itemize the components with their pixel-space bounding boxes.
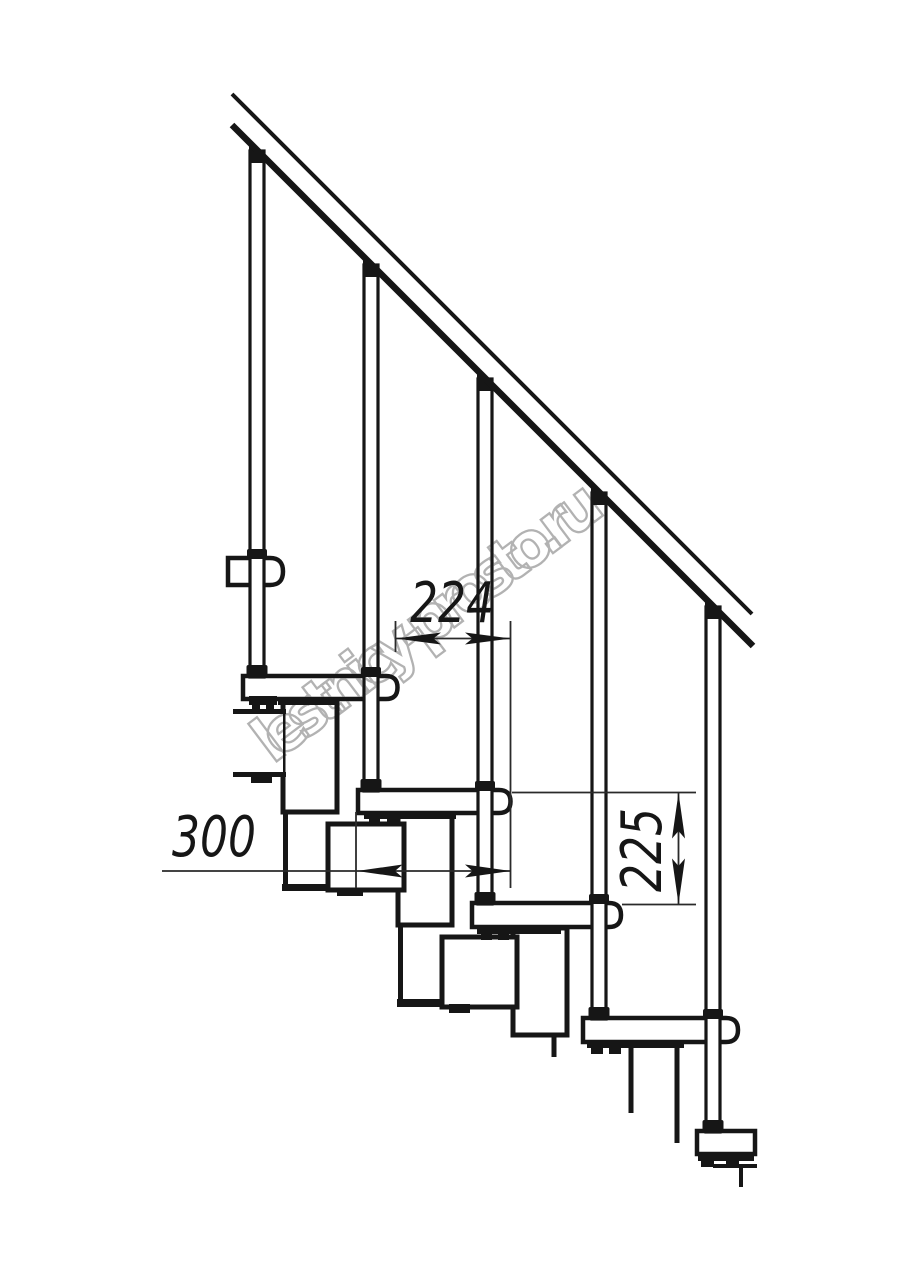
module-drop-strip-3 xyxy=(513,928,567,1035)
tread-4-bracket-foot xyxy=(481,934,492,940)
tread-6-bracket-foot xyxy=(701,1161,714,1167)
drawing-page: 224 300 225 lestnicy-prosto.ru xyxy=(0,0,914,1280)
tread-4-shadow xyxy=(477,925,561,934)
baluster-4-collar xyxy=(589,894,609,904)
module-box-1-hook xyxy=(251,776,272,783)
baluster-1 xyxy=(250,151,264,677)
tread-5-bracket-foot xyxy=(591,1048,603,1054)
tread-4-bracket-foot xyxy=(498,934,509,940)
watermark-text: lestnicy-prosto.ru xyxy=(238,469,613,776)
tread-6 xyxy=(697,1131,755,1154)
staircase-drawing: 224 300 225 lestnicy-prosto.ru xyxy=(0,0,914,1280)
tread-5-bracket-foot xyxy=(609,1048,621,1054)
tread-3-bracket-foot xyxy=(387,819,398,825)
baluster-4 xyxy=(592,493,606,1019)
baluster-3-base xyxy=(475,892,496,903)
tread-6-shadow xyxy=(698,1152,754,1161)
baluster-1-base xyxy=(247,665,268,676)
dimension-225-label: 225 xyxy=(610,808,675,892)
tread-6-bracket-foot xyxy=(726,1161,739,1167)
module-box-3 xyxy=(442,937,517,1007)
baluster-5-collar xyxy=(703,1009,723,1019)
module-box-2 xyxy=(328,824,404,890)
baluster-5-base xyxy=(703,1120,724,1131)
baluster-4-base xyxy=(589,1007,610,1018)
module-box-3-hook xyxy=(449,1004,470,1013)
baluster-1-collar xyxy=(247,549,267,559)
baluster-2-base xyxy=(361,779,382,790)
tread-3-bracket-foot xyxy=(369,819,380,825)
module-chain xyxy=(233,700,757,1187)
tread-5-shadow xyxy=(587,1040,684,1048)
dimension-300-label: 300 xyxy=(172,805,256,870)
tread-3-shadow xyxy=(364,811,456,819)
module-box-2-hook xyxy=(337,888,363,896)
baluster-5 xyxy=(706,607,720,1132)
baluster-3-collar xyxy=(475,781,495,791)
